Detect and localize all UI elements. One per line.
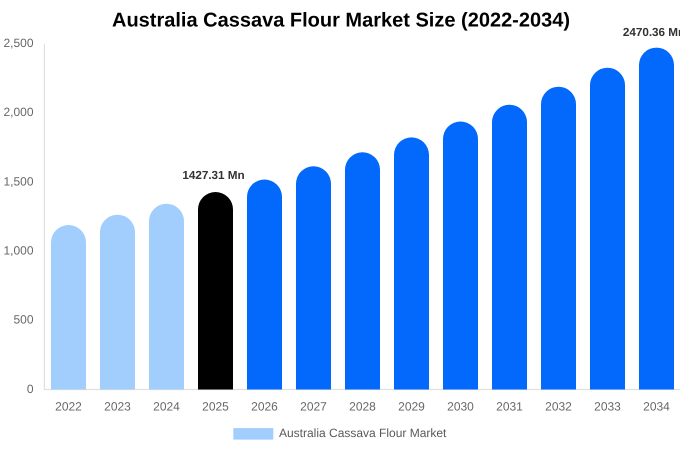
svg-text:2030: 2030: [447, 400, 474, 414]
svg-text:2023: 2023: [104, 400, 131, 414]
svg-text:1427.31 Mn: 1427.31 Mn: [182, 169, 244, 182]
svg-text:1,000: 1,000: [3, 244, 33, 258]
svg-text:2031: 2031: [496, 400, 523, 414]
svg-text:2034: 2034: [643, 400, 670, 414]
svg-text:Australia Cassava Flour Market: Australia Cassava Flour Market Size (202…: [112, 10, 570, 32]
svg-text:2033: 2033: [594, 400, 621, 414]
svg-text:500: 500: [13, 313, 33, 327]
svg-text:2,000: 2,000: [3, 105, 33, 119]
svg-text:2024: 2024: [153, 400, 180, 414]
svg-text:2027: 2027: [300, 400, 327, 414]
svg-text:2025: 2025: [202, 400, 229, 414]
svg-text:2470.36 Mn: 2470.36 Mn: [623, 26, 680, 39]
svg-text:2026: 2026: [251, 400, 278, 414]
svg-text:2022: 2022: [55, 400, 82, 414]
svg-text:2032: 2032: [545, 400, 572, 414]
svg-text:2028: 2028: [349, 400, 376, 414]
svg-text:1,500: 1,500: [3, 174, 33, 188]
svg-text:0: 0: [27, 382, 34, 396]
svg-text:2029: 2029: [398, 400, 425, 414]
svg-text:2,500: 2,500: [3, 36, 33, 50]
svg-text:Australia Cassava Flour Market: Australia Cassava Flour Market: [279, 426, 447, 440]
